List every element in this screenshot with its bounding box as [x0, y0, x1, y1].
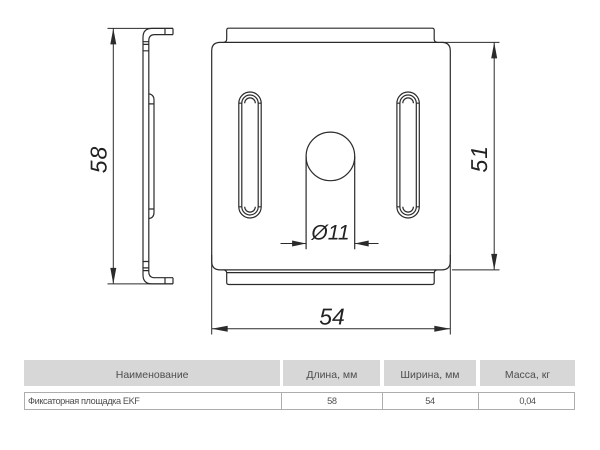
svg-text:51: 51	[466, 145, 492, 173]
svg-text:54: 54	[319, 304, 345, 330]
svg-text:58: 58	[86, 146, 112, 174]
svg-text:Ø11: Ø11	[310, 222, 349, 245]
